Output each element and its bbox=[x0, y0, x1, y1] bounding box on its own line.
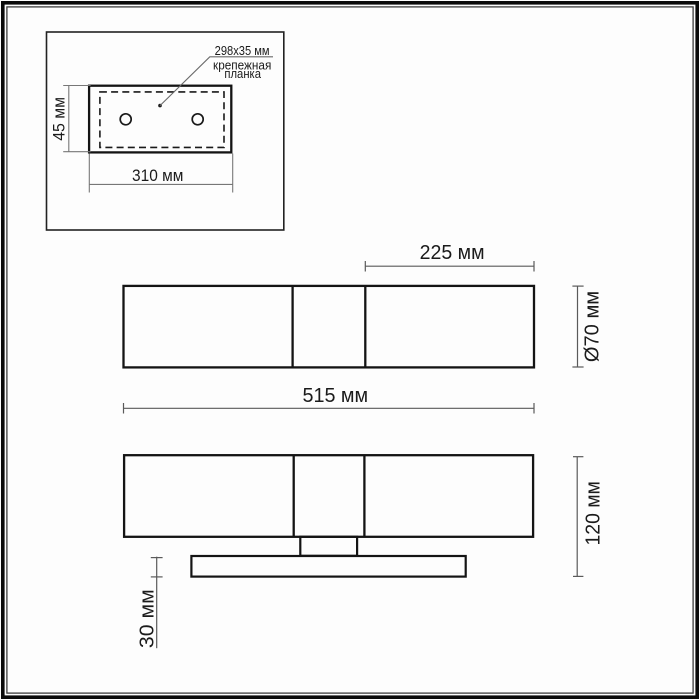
svg-text:45 мм: 45 мм bbox=[49, 97, 68, 141]
svg-text:30 мм: 30 мм bbox=[136, 589, 159, 648]
svg-text:Ø70 мм: Ø70 мм bbox=[581, 291, 604, 362]
svg-text:планка: планка bbox=[224, 66, 261, 81]
svg-text:515 мм: 515 мм bbox=[302, 384, 368, 407]
svg-text:120 мм: 120 мм bbox=[582, 481, 605, 545]
svg-text:310 мм: 310 мм bbox=[132, 166, 183, 185]
svg-text:298x35 мм: 298x35 мм bbox=[215, 43, 270, 58]
svg-text:225 мм: 225 мм bbox=[420, 241, 485, 264]
